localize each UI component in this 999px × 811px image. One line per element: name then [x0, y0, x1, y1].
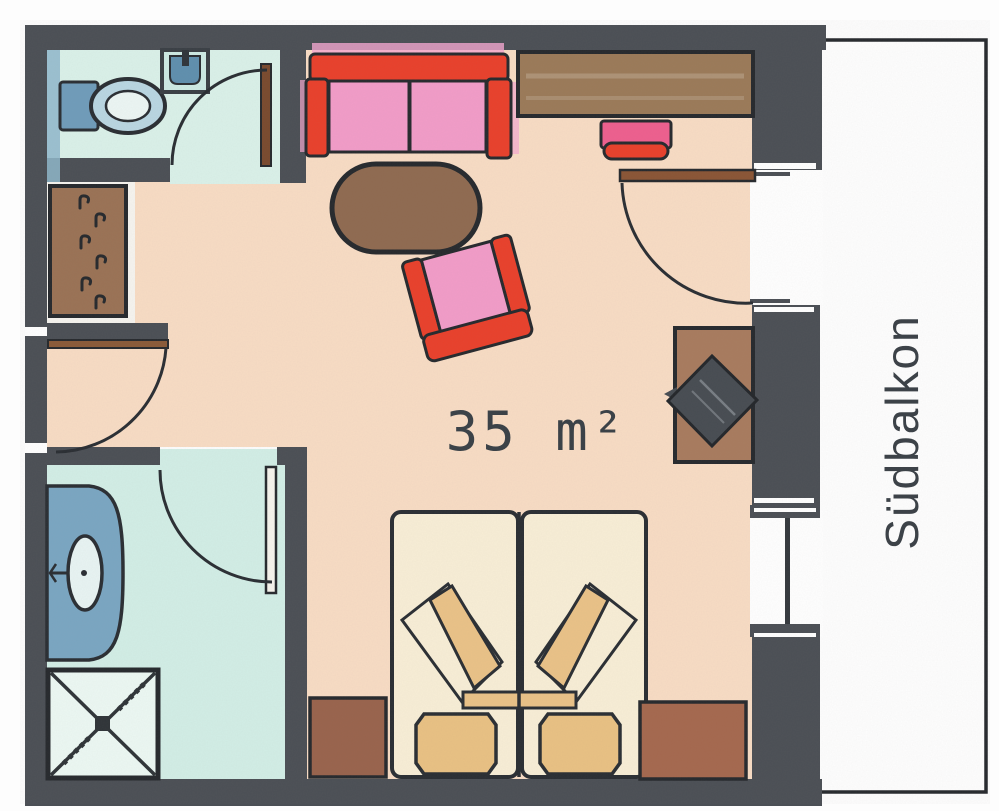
scan-grain-overlay — [20, 20, 990, 804]
floor-plan-page: Südbalkon — [0, 0, 999, 811]
floor-plan-scan: Südbalkon — [0, 0, 999, 811]
